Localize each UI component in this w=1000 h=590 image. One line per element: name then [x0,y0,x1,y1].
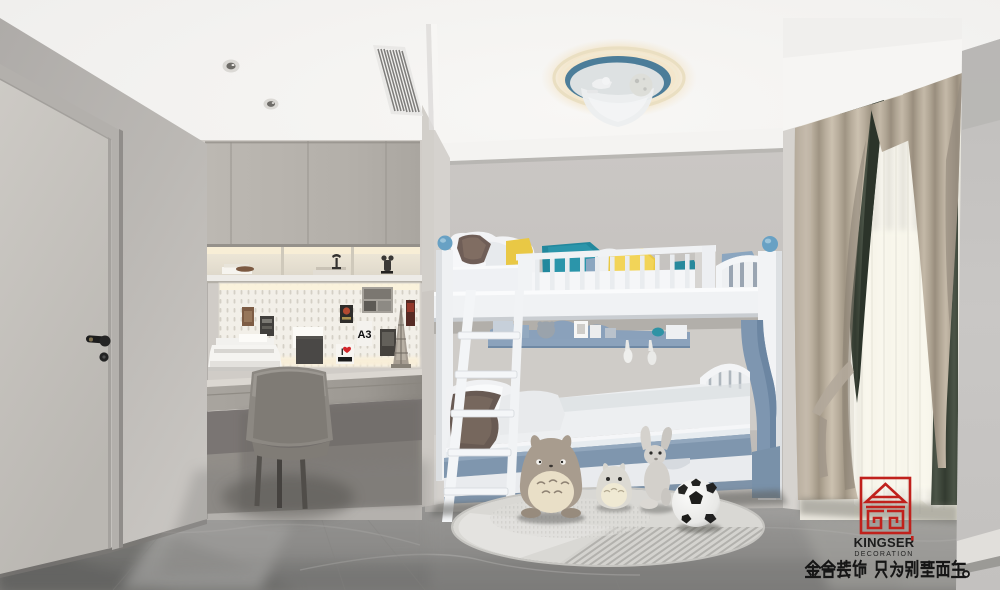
svg-text:DECORATION: DECORATION [854,551,913,558]
svg-text:KINGSER: KINGSER [854,535,915,550]
svg-text:A3: A3 [357,329,371,341]
